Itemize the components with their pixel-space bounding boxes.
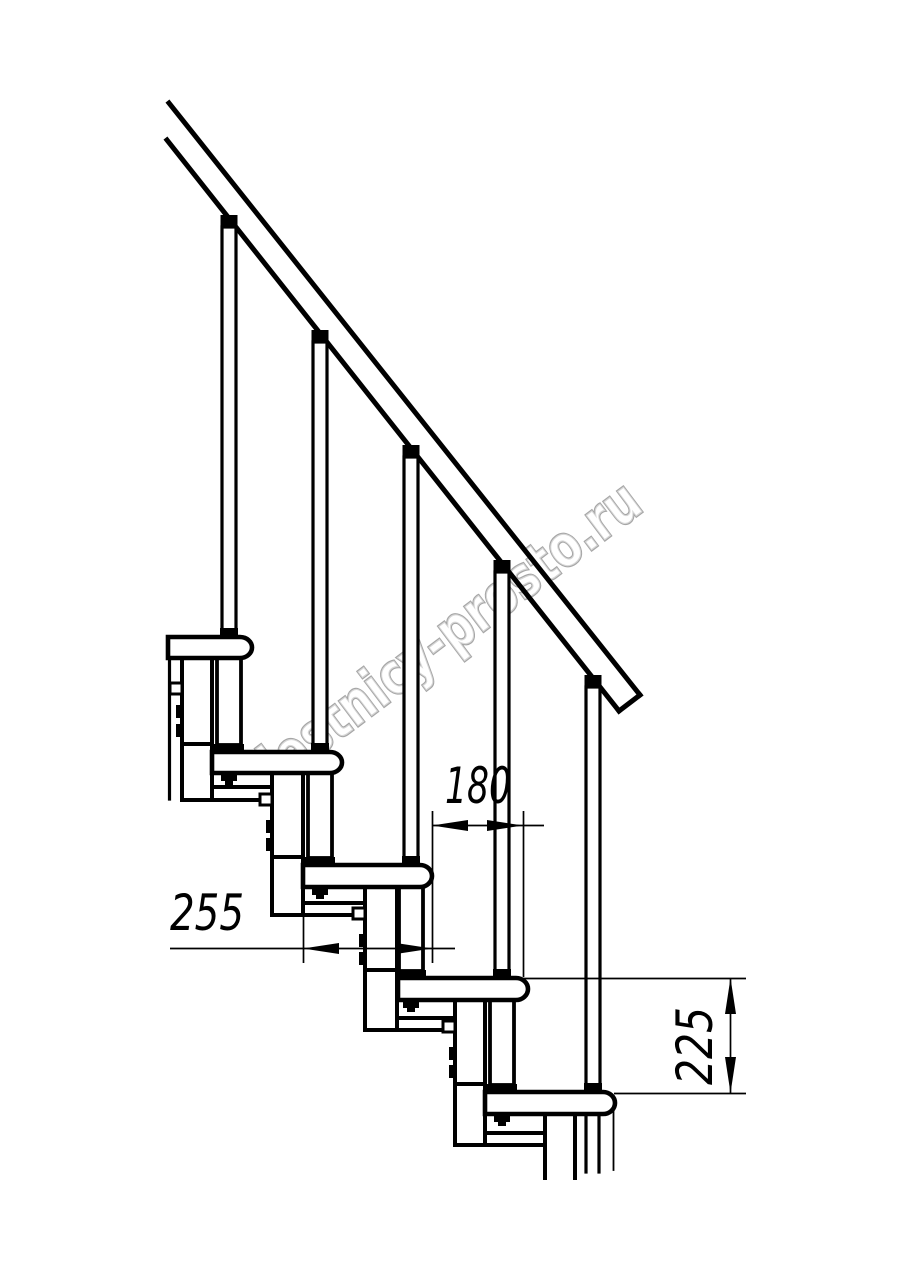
module-bolt	[266, 820, 272, 833]
tread	[485, 1092, 615, 1114]
column-shaft	[217, 658, 241, 745]
module-body	[365, 887, 397, 1030]
tread	[168, 637, 252, 658]
tread	[212, 752, 342, 773]
module-bolt	[176, 705, 182, 718]
column-nut-tail	[407, 1008, 415, 1012]
drawing-canvas: lestnicy-prosto.ru	[0, 0, 914, 1280]
baluster	[584, 675, 602, 1092]
module-body	[182, 658, 212, 800]
module-bolt	[359, 934, 365, 947]
column-nut-tail	[316, 895, 324, 899]
staircase-technical-drawing: lestnicy-prosto.ru	[0, 0, 914, 1280]
dimension-value-step-overlap: 180	[445, 757, 511, 815]
baluster	[220, 215, 238, 637]
tread	[303, 865, 432, 887]
module-bolt	[266, 838, 272, 851]
module-body	[272, 773, 303, 915]
dimension-value-tread-depth: 255	[170, 884, 244, 942]
module-tab	[260, 794, 272, 805]
baluster-shaft	[404, 457, 418, 865]
module-tab	[170, 683, 182, 694]
column-shaft	[490, 1000, 514, 1085]
baluster-shaft	[313, 342, 327, 752]
dimension-value-step-rise: 225	[666, 1007, 724, 1085]
baluster-shaft	[586, 687, 600, 1092]
baluster-shaft	[222, 227, 236, 637]
column-shaft	[308, 773, 332, 858]
tread	[398, 978, 528, 1000]
baluster	[402, 445, 420, 865]
column-nut-tail	[225, 781, 233, 785]
module-tab	[443, 1021, 455, 1032]
column-shaft	[399, 887, 423, 971]
baluster	[311, 330, 329, 752]
module-bolt	[359, 952, 365, 965]
module-bolt	[176, 724, 182, 737]
baluster-top-cap	[403, 445, 420, 457]
module-tab	[353, 908, 365, 919]
module-body	[455, 1000, 485, 1145]
baluster-top-cap	[494, 560, 511, 572]
baluster-top-cap	[312, 330, 329, 342]
baluster-top-cap	[585, 675, 602, 687]
column-nut-tail	[498, 1122, 506, 1126]
module-plate	[485, 1133, 545, 1145]
baluster-top-cap	[221, 215, 238, 227]
module-bolt	[449, 1065, 455, 1078]
module-bolt	[449, 1047, 455, 1060]
